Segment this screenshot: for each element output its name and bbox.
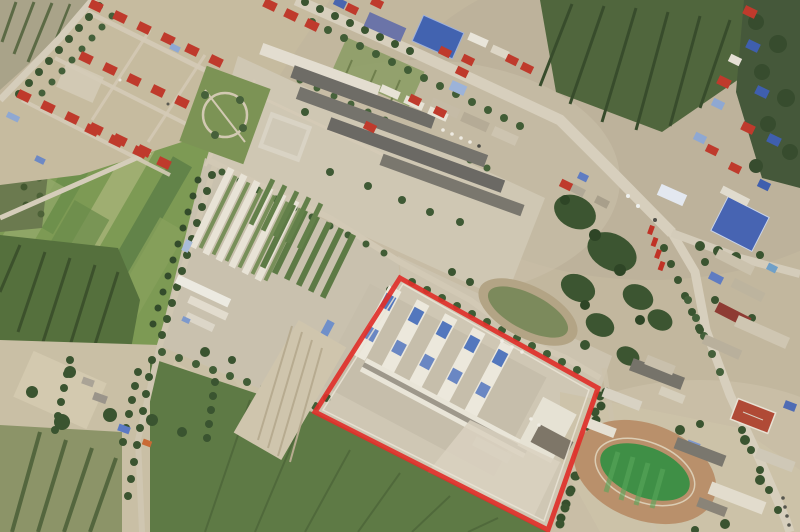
tree bbox=[711, 296, 719, 304]
parked-car bbox=[477, 144, 481, 148]
campus-tree bbox=[398, 196, 406, 204]
road-tree-row bbox=[331, 12, 339, 20]
parked-car bbox=[783, 505, 787, 509]
road-tree-row bbox=[356, 42, 364, 50]
tree bbox=[701, 258, 709, 266]
road-tree-row bbox=[391, 40, 399, 48]
tree bbox=[695, 241, 705, 251]
tree bbox=[26, 386, 38, 398]
parked-car bbox=[785, 514, 789, 518]
road-tree-row bbox=[148, 356, 156, 364]
tree bbox=[740, 435, 750, 445]
parked-car bbox=[781, 496, 785, 500]
field-tree-band bbox=[128, 396, 136, 404]
tree bbox=[103, 408, 117, 422]
road-tree-row bbox=[69, 57, 76, 64]
road-tree-row bbox=[468, 98, 476, 106]
parked-car bbox=[787, 523, 791, 527]
road-tree-row bbox=[756, 466, 764, 474]
road-tree-row bbox=[160, 289, 167, 296]
parked-car bbox=[468, 140, 472, 144]
road-tree-row bbox=[346, 19, 354, 27]
track-west-trees bbox=[566, 488, 575, 497]
road-tree-row bbox=[175, 241, 182, 248]
track-west-trees bbox=[561, 504, 570, 513]
parked-car bbox=[450, 132, 454, 136]
road-tree-row bbox=[436, 82, 444, 90]
road-tree-row bbox=[139, 407, 147, 415]
tree bbox=[675, 425, 685, 435]
campus-tree bbox=[426, 208, 434, 216]
road-tree-row bbox=[340, 34, 348, 42]
tree bbox=[200, 347, 210, 357]
road-tree-row bbox=[404, 66, 412, 74]
road-tree-row bbox=[195, 177, 202, 184]
park-tree bbox=[239, 124, 247, 132]
tree bbox=[755, 475, 765, 485]
road-tree-row bbox=[145, 373, 153, 381]
tree bbox=[580, 340, 590, 350]
vehicle bbox=[167, 103, 170, 106]
road-tree-row bbox=[180, 225, 187, 232]
road-tree-row bbox=[516, 122, 524, 130]
satellite-scene bbox=[0, 0, 800, 532]
road-tree-row bbox=[738, 426, 746, 434]
field-tree-band bbox=[205, 420, 213, 428]
road-tree-row bbox=[684, 296, 692, 304]
field-tree-band bbox=[131, 382, 139, 390]
campus-tree bbox=[301, 108, 309, 116]
satellite-image bbox=[0, 0, 800, 532]
road-tree-row bbox=[716, 368, 724, 376]
vehicle bbox=[636, 204, 640, 208]
road-tree-row bbox=[155, 305, 162, 312]
tree-blob bbox=[782, 144, 798, 160]
road-tree-row bbox=[85, 13, 93, 21]
vehicle bbox=[653, 218, 657, 222]
field-tree-band bbox=[119, 438, 127, 446]
road-tree-row bbox=[484, 106, 492, 114]
tree-blob bbox=[580, 300, 590, 310]
field-tree-row bbox=[243, 378, 251, 386]
road-tree-row bbox=[420, 74, 428, 82]
tree-blob bbox=[777, 89, 795, 107]
vehicle bbox=[520, 350, 524, 354]
tree bbox=[696, 420, 704, 428]
road-tree-row bbox=[178, 267, 186, 275]
park-tree bbox=[201, 91, 209, 99]
road-tree-row bbox=[130, 458, 138, 466]
road-tree-row bbox=[163, 315, 171, 323]
parked-car bbox=[441, 128, 445, 132]
road-tree-row bbox=[150, 321, 157, 328]
road-tree-row bbox=[168, 299, 176, 307]
road-tree-row bbox=[324, 26, 332, 34]
campus-tree bbox=[456, 218, 464, 226]
road-tree-row bbox=[59, 68, 66, 75]
road-tree-row bbox=[692, 314, 700, 322]
road-tree-row bbox=[219, 169, 226, 176]
road-tree-row bbox=[99, 24, 106, 31]
tree bbox=[146, 414, 158, 426]
road-tree-row bbox=[55, 46, 63, 54]
road-tree-row bbox=[142, 390, 150, 398]
road-tree-row bbox=[158, 331, 166, 339]
vehicle bbox=[119, 79, 122, 82]
road-tree-row bbox=[667, 260, 675, 268]
road-tree-row bbox=[208, 171, 216, 179]
road-tree-row bbox=[500, 114, 508, 122]
road-tree-row bbox=[136, 424, 144, 432]
field-tree-band bbox=[134, 368, 142, 376]
vehicle bbox=[626, 194, 630, 198]
field-tree-band bbox=[57, 398, 65, 406]
road-tree-row bbox=[75, 24, 83, 32]
tree bbox=[448, 268, 456, 276]
orchard-tree bbox=[21, 184, 28, 191]
vehicle bbox=[510, 345, 514, 349]
park-tree bbox=[211, 131, 219, 139]
road-tree-row bbox=[708, 350, 716, 358]
road-tree-row bbox=[372, 50, 380, 58]
road-tree-row bbox=[381, 250, 388, 257]
tree-blob bbox=[749, 159, 763, 173]
campus-tree-row bbox=[484, 165, 491, 172]
field-tree-row bbox=[175, 354, 183, 362]
road-tree-row bbox=[45, 57, 53, 65]
orchard-tree bbox=[38, 211, 45, 218]
road-tree-row bbox=[165, 273, 172, 280]
campus-tree bbox=[326, 168, 334, 176]
road-tree-row bbox=[203, 187, 211, 195]
tree bbox=[54, 414, 70, 430]
tree-blob bbox=[635, 315, 645, 325]
field-tree-band bbox=[203, 434, 211, 442]
field-tree-row bbox=[226, 372, 234, 380]
tree-blob bbox=[754, 64, 770, 80]
field-tree-row bbox=[192, 360, 200, 368]
road-tree-row bbox=[674, 276, 682, 284]
campus-tree bbox=[364, 182, 372, 190]
road-tree-row bbox=[39, 90, 46, 97]
tree-blob bbox=[769, 35, 787, 53]
tree-blob bbox=[614, 264, 626, 276]
road-tree-row bbox=[316, 5, 324, 13]
road-tree-row bbox=[65, 35, 73, 43]
tree bbox=[720, 519, 730, 529]
road-tree-row bbox=[198, 203, 206, 211]
tree bbox=[756, 251, 764, 259]
road-tree-row bbox=[190, 193, 197, 200]
road-tree-row bbox=[406, 47, 414, 55]
vehicle bbox=[529, 417, 533, 421]
field-tree-row bbox=[158, 348, 166, 356]
road-tree-row bbox=[170, 257, 177, 264]
field-tree-band bbox=[60, 384, 68, 392]
road-tree-row bbox=[765, 486, 773, 494]
road-tree-row bbox=[89, 35, 96, 42]
road-tree-row bbox=[133, 441, 141, 449]
tree-blob bbox=[589, 229, 601, 241]
tree bbox=[177, 427, 187, 437]
road-tree-row bbox=[49, 79, 56, 86]
tree bbox=[466, 278, 474, 286]
vehicle bbox=[500, 339, 504, 343]
track-west-trees bbox=[556, 520, 565, 529]
road-tree-row bbox=[124, 492, 132, 500]
tree bbox=[696, 326, 704, 334]
field-tree-row bbox=[209, 366, 217, 374]
field-tree-band bbox=[209, 392, 217, 400]
road-tree-row bbox=[185, 209, 192, 216]
road-tree-row bbox=[25, 79, 33, 87]
field-tree-band bbox=[211, 378, 219, 386]
parked-car bbox=[459, 136, 463, 140]
tree-blob bbox=[760, 116, 776, 132]
road-tree-row bbox=[35, 68, 43, 76]
road-tree-row bbox=[388, 58, 396, 66]
road-tree-row bbox=[363, 241, 370, 248]
field-tree-band bbox=[125, 410, 133, 418]
tree-blob bbox=[560, 195, 570, 205]
road-tree-row bbox=[747, 446, 755, 454]
road-tree-row bbox=[774, 506, 782, 514]
field-tree-band bbox=[207, 406, 215, 414]
orchard-mid-left bbox=[0, 235, 140, 354]
road-tree-row bbox=[127, 475, 135, 483]
vehicle bbox=[537, 423, 541, 427]
park-tree bbox=[236, 96, 244, 104]
tree bbox=[64, 366, 76, 378]
tree bbox=[228, 356, 236, 364]
field-tree-band bbox=[66, 356, 74, 364]
